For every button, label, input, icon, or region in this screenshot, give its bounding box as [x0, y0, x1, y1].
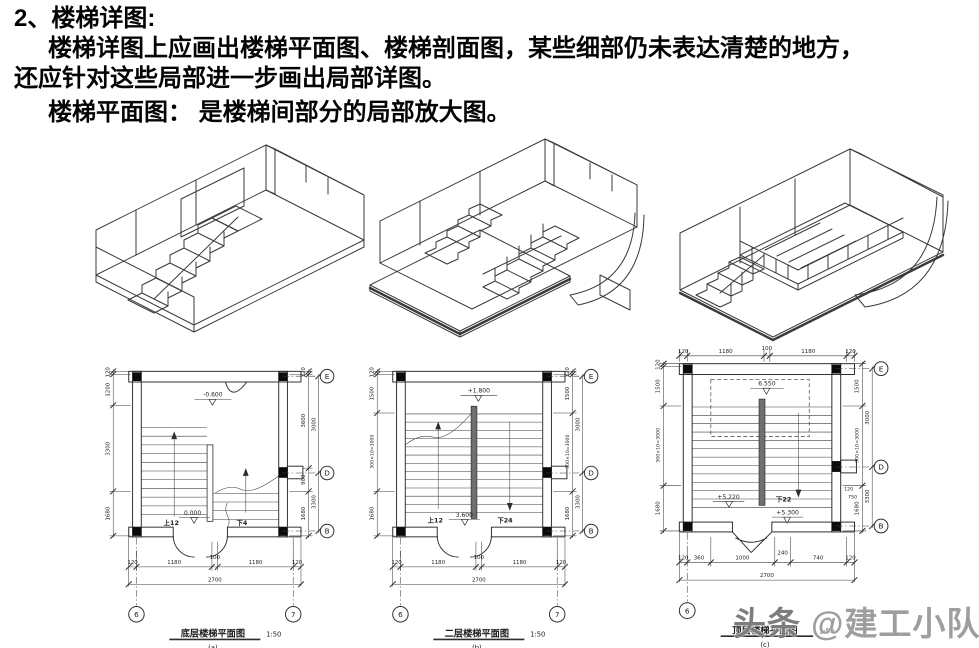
- svg-text:1180: 1180: [249, 560, 263, 566]
- planB-caption-text: 二层楼梯平面图: [445, 628, 509, 640]
- svg-text:6: 6: [398, 610, 403, 619]
- planB-elev-door: 3.600: [456, 512, 473, 519]
- iso2-enclosure: [380, 139, 644, 310]
- plan-ground-floor: -0.600 0.000 上12 下4 120 1180 100 1180 12…: [84, 352, 336, 648]
- planB-stairs: [405, 406, 542, 557]
- svg-text:2700: 2700: [472, 577, 486, 583]
- svg-text:1680: 1680: [854, 501, 860, 515]
- planB-elev-top: +1.800: [468, 388, 490, 395]
- watermark-badge: 头条: [733, 605, 801, 642]
- svg-text:120: 120: [369, 367, 375, 378]
- svg-text:1680: 1680: [369, 506, 375, 520]
- planA-dims-bottom: 120 1180 100 1180 120 2700: [126, 538, 304, 587]
- svg-text:240: 240: [777, 551, 788, 557]
- svg-text:D: D: [324, 469, 330, 478]
- svg-text:360: 360: [694, 555, 705, 561]
- plan-second-floor: +1.800 3.600 上12 下24 120 1180 100 1180 1…: [348, 352, 600, 648]
- svg-text:6: 6: [134, 610, 139, 619]
- paragraph-line-1: 楼梯详图上应画出楼梯平面图、楼梯剖面图，某些细部仍未表达清楚的地方，: [14, 34, 976, 64]
- svg-text:100: 100: [474, 555, 485, 561]
- svg-text:100: 100: [210, 555, 221, 561]
- planC-elev-door: +5.300: [776, 510, 799, 517]
- planB-down-label: 下24: [497, 516, 513, 524]
- svg-text:300×10=3000: 300×10=3000: [565, 435, 571, 469]
- svg-text:1500: 1500: [854, 379, 860, 393]
- svg-text:1680: 1680: [301, 506, 307, 520]
- svg-text:3000: 3000: [865, 410, 871, 424]
- svg-text:900: 900: [301, 474, 307, 485]
- svg-text:120: 120: [845, 349, 856, 355]
- planA-dims-right: 120 3600 900 1680 3000 3300: [289, 367, 321, 539]
- iso-middle-floor-drawing: [365, 135, 665, 350]
- watermark-handle: @建工小队长: [811, 605, 979, 642]
- svg-text:1500: 1500: [565, 386, 571, 400]
- planA-caption: 底层楼梯平面图 1:50 (a): [169, 628, 281, 648]
- svg-text:300×10=3000: 300×10=3000: [854, 428, 860, 463]
- svg-text:740: 740: [813, 555, 824, 561]
- planC-dims-top: 120 1180 100 1180 120: [676, 346, 857, 362]
- planA-scale: 1:50: [266, 631, 281, 639]
- svg-text:120: 120: [845, 555, 856, 561]
- svg-text:1180: 1180: [513, 560, 527, 566]
- svg-text:E: E: [879, 364, 884, 373]
- planA-up-label: 上12: [164, 518, 179, 527]
- svg-text:D: D: [588, 469, 594, 478]
- svg-text:1500: 1500: [656, 379, 662, 393]
- header-text-block: 2、楼梯详图: 楼梯详图上应画出楼梯平面图、楼梯剖面图，某些细部仍未表达清楚的地…: [14, 4, 976, 128]
- watermark: 头条 @建工小队长: [733, 597, 979, 645]
- planA-elev-door: 0.000: [184, 510, 201, 517]
- svg-text:B: B: [589, 527, 594, 536]
- planC-elevations: 6.550 +5.220 下22 +5.300 120 750: [713, 380, 857, 523]
- planC-stairs: [692, 379, 832, 552]
- planB-dims-right: 120 1500 300×10=3000 1680 3000 3300: [553, 367, 585, 539]
- svg-text:2700: 2700: [208, 577, 222, 583]
- iso3-landing: [740, 203, 903, 290]
- svg-text:3600: 3600: [301, 413, 307, 427]
- svg-text:E: E: [589, 372, 594, 381]
- planC-elev-mid: +5.220: [717, 494, 740, 501]
- svg-text:1180: 1180: [719, 349, 733, 355]
- svg-text:3000: 3000: [575, 417, 581, 431]
- svg-text:3300: 3300: [865, 489, 871, 503]
- svg-text:7: 7: [555, 610, 560, 619]
- svg-text:1200: 1200: [105, 382, 111, 396]
- svg-text:300×10=3000: 300×10=3000: [656, 428, 662, 463]
- svg-text:3300: 3300: [105, 441, 111, 455]
- svg-text:1000: 1000: [735, 555, 749, 561]
- document-page: 2、楼梯详图: 楼梯详图上应画出楼梯平面图、楼梯剖面图，某些细部仍未表达清楚的地…: [0, 0, 979, 648]
- planC-dims-bottom: 120 360 1000 240 740 120 2700: [676, 533, 857, 583]
- svg-text:300×10=3000: 300×10=3000: [369, 435, 375, 469]
- planC-dims-left: 120 1500 300×10=3000 1680: [656, 359, 682, 534]
- planC-elev-top: 6.550: [758, 380, 776, 387]
- paragraph-line-2: 还应针对这些局部进一步画出局部详图。: [14, 64, 976, 94]
- planA-stairs: [141, 427, 278, 557]
- svg-text:120: 120: [301, 367, 307, 378]
- planC-down-label: 下22: [776, 495, 792, 503]
- svg-text:1180: 1180: [801, 349, 815, 355]
- svg-text:E: E: [325, 372, 330, 381]
- svg-text:120: 120: [565, 367, 571, 378]
- planA-tag: (a): [208, 644, 218, 648]
- svg-text:100: 100: [762, 346, 773, 352]
- svg-text:B: B: [325, 527, 330, 536]
- svg-text:7: 7: [291, 610, 296, 619]
- planC-dims-right: 1500 300×10=3000 1680 3000 3300: [843, 361, 875, 534]
- planA-dims-left: 120 1200 3300 1680: [105, 367, 130, 539]
- svg-text:120: 120: [844, 487, 853, 493]
- paragraph-line-3: 楼梯平面图： 是楼梯间部分的局部放大图。: [14, 98, 976, 128]
- svg-text:1180: 1180: [431, 560, 445, 566]
- svg-text:120: 120: [556, 560, 567, 566]
- svg-text:D: D: [878, 463, 884, 472]
- planB-dims-left: 120 1500 300×10=3000 1680: [369, 367, 394, 539]
- svg-text:120: 120: [678, 349, 689, 355]
- svg-text:120: 120: [105, 367, 111, 378]
- planB-scale: 1:50: [530, 631, 545, 639]
- svg-text:1680: 1680: [565, 506, 571, 520]
- iso-ground-floor-drawing: [76, 142, 376, 347]
- svg-text:1680: 1680: [656, 501, 662, 515]
- svg-text:B: B: [879, 522, 884, 531]
- svg-text:1680: 1680: [105, 506, 111, 520]
- svg-text:2700: 2700: [760, 573, 774, 579]
- svg-text:120: 120: [656, 359, 662, 370]
- planB-up-label: 上12: [428, 515, 443, 524]
- svg-text:3300: 3300: [575, 495, 581, 509]
- svg-text:6: 6: [685, 606, 690, 615]
- svg-text:1500: 1500: [369, 386, 375, 400]
- planB-dims-bottom: 120 1180 100 1180 120 2700: [390, 538, 568, 587]
- iso1-stairs: [128, 206, 262, 313]
- planA-elevations: -0.600 0.000 上12 下4: [164, 392, 248, 528]
- svg-text:120: 120: [292, 560, 303, 566]
- iso3-stairs: [696, 255, 764, 307]
- section-title: 2、楼梯详图:: [14, 4, 976, 34]
- planB-tag: (b): [472, 644, 482, 648]
- planA-down-label: 下4: [237, 519, 248, 527]
- planA-elev-top: -0.600: [203, 392, 222, 399]
- iso-top-floor-drawing: [640, 135, 960, 350]
- svg-text:1180: 1180: [167, 560, 181, 566]
- planB-caption: 二层楼梯平面图 1:50 (b): [433, 628, 545, 648]
- iso3-enclosure: [680, 149, 948, 340]
- planA-caption-text: 底层楼梯平面图: [181, 628, 245, 640]
- svg-text:3300: 3300: [311, 495, 317, 509]
- svg-text:3000: 3000: [311, 417, 317, 431]
- svg-text:750: 750: [848, 494, 857, 500]
